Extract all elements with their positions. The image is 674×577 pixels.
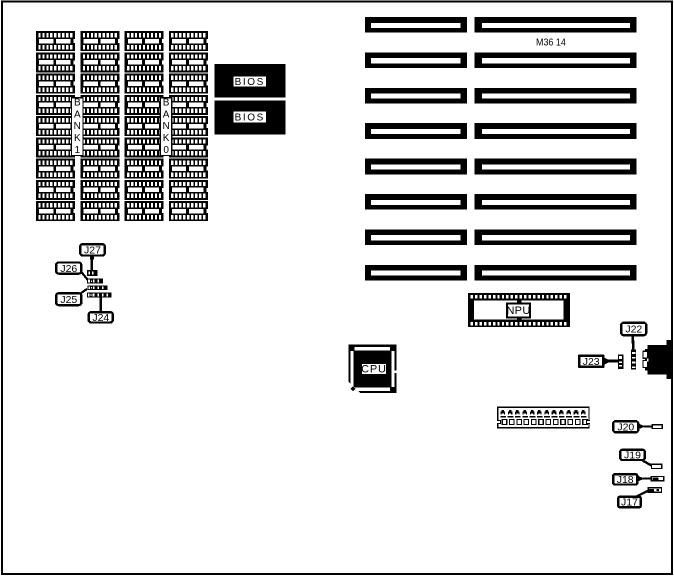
svg-text:0: 0 <box>163 145 169 156</box>
svg-text:K: K <box>163 133 170 144</box>
svg-text:J27: J27 <box>84 245 101 257</box>
svg-text:J26: J26 <box>60 263 77 275</box>
svg-text:N: N <box>162 121 169 132</box>
svg-text:A: A <box>163 109 170 120</box>
svg-text:NPU: NPU <box>506 305 530 317</box>
svg-text:J23: J23 <box>583 356 600 368</box>
svg-text:1: 1 <box>75 145 81 156</box>
svg-text:J19: J19 <box>624 450 641 462</box>
svg-text:J17: J17 <box>621 497 638 509</box>
svg-text:N: N <box>74 121 81 132</box>
svg-text:A: A <box>74 109 81 120</box>
svg-text:CPU: CPU <box>361 363 387 375</box>
svg-text:J24: J24 <box>92 312 109 324</box>
svg-text:BIOS: BIOS <box>235 77 265 88</box>
svg-text:BIOS: BIOS <box>235 113 265 124</box>
svg-text:K: K <box>74 133 81 144</box>
svg-text:J22: J22 <box>625 324 642 336</box>
svg-text:M36 14: M36 14 <box>536 38 566 49</box>
svg-text:J20: J20 <box>617 421 634 433</box>
svg-text:B: B <box>163 98 170 109</box>
svg-text:B: B <box>74 98 81 109</box>
svg-text:J18: J18 <box>617 474 634 486</box>
svg-text:J25: J25 <box>60 294 77 306</box>
